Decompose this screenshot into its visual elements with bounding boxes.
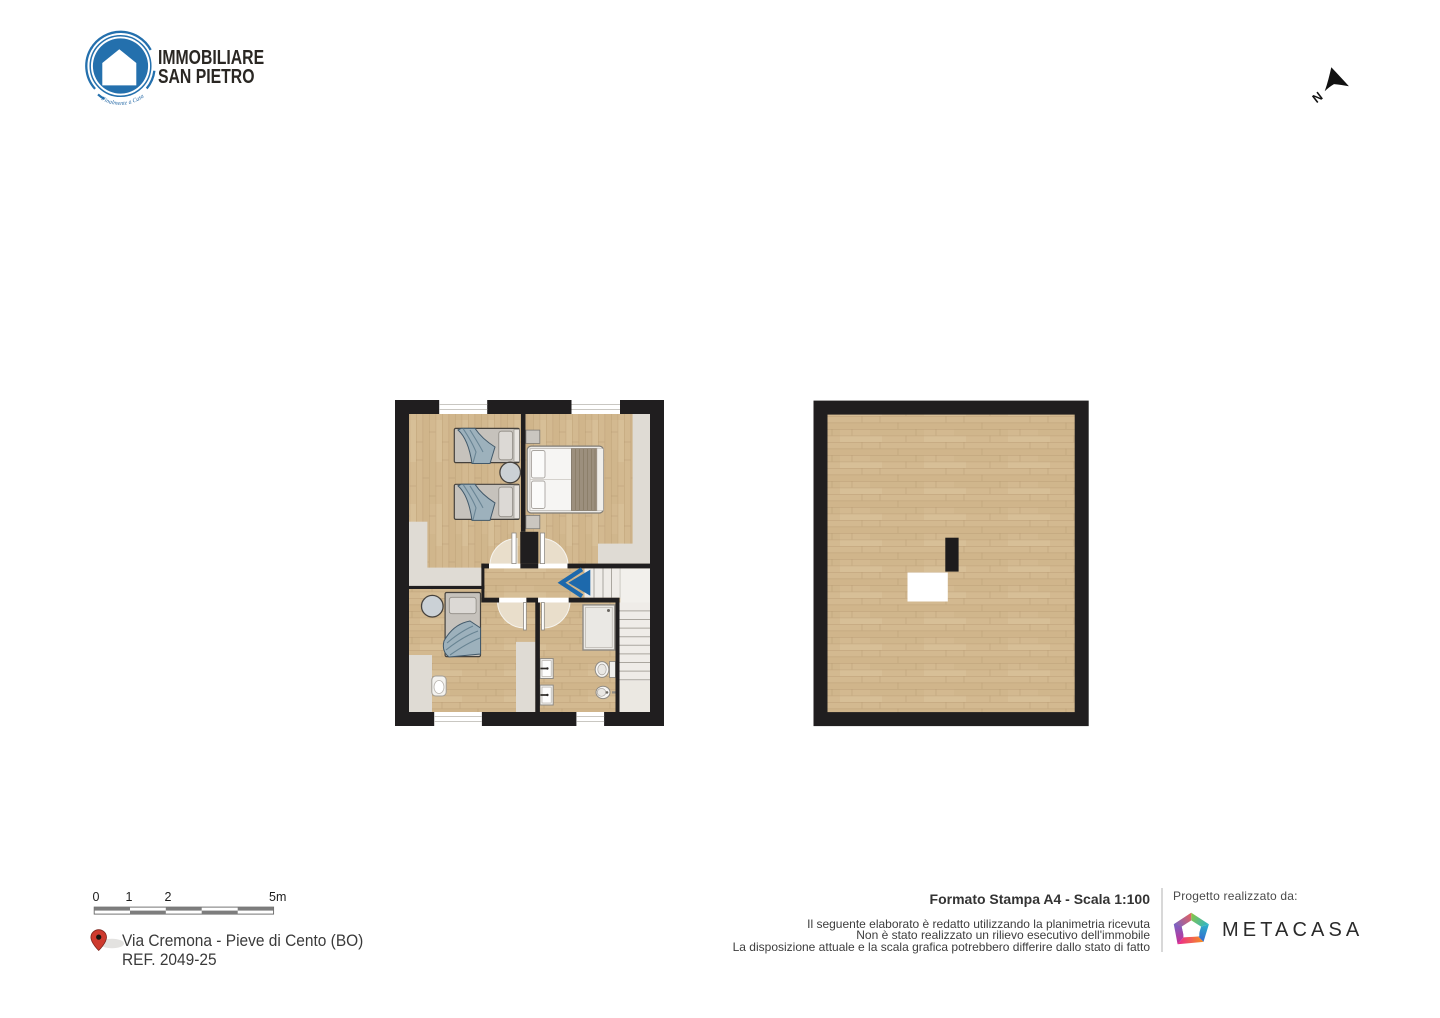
svg-text:N: N (1310, 89, 1326, 106)
